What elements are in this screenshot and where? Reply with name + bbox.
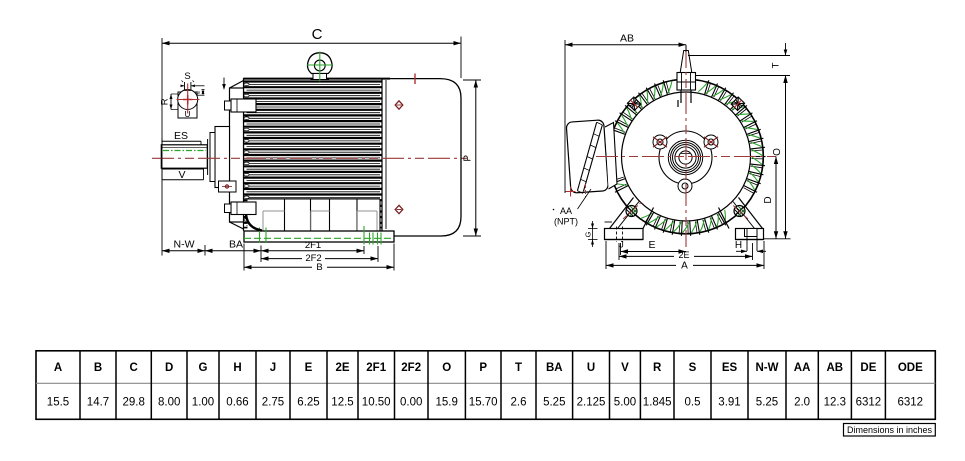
svg-text:C: C — [130, 362, 138, 374]
svg-text:A: A — [54, 362, 62, 374]
svg-text:AA: AA — [560, 206, 572, 216]
svg-text:5.25: 5.25 — [756, 396, 778, 408]
svg-text:J: J — [619, 240, 624, 250]
svg-text:T: T — [771, 62, 782, 68]
svg-text:ES: ES — [722, 362, 738, 374]
svg-text:ES: ES — [174, 130, 188, 142]
svg-text:1.845: 1.845 — [643, 396, 672, 408]
svg-text:N-W: N-W — [174, 239, 195, 251]
svg-text:G: G — [199, 362, 208, 374]
svg-text:BA: BA — [229, 239, 243, 251]
svg-text:12.5: 12.5 — [331, 396, 353, 408]
svg-text:J: J — [270, 362, 276, 374]
svg-text:2.75: 2.75 — [262, 396, 284, 408]
svg-text:R: R — [653, 362, 662, 374]
svg-text:10.50: 10.50 — [362, 396, 391, 408]
svg-text:E: E — [305, 362, 313, 374]
svg-text:AA: AA — [794, 362, 811, 374]
svg-text:5.25: 5.25 — [543, 396, 565, 408]
svg-text:A: A — [681, 261, 688, 272]
svg-text:6312: 6312 — [856, 396, 882, 408]
svg-text:ODE: ODE — [898, 362, 923, 374]
svg-text:2.125: 2.125 — [577, 396, 606, 408]
svg-text:2F1: 2F1 — [305, 240, 321, 251]
svg-text:H: H — [735, 240, 742, 251]
svg-text:2F1: 2F1 — [366, 362, 386, 374]
svg-text:S: S — [184, 71, 190, 82]
svg-text:2E: 2E — [678, 250, 689, 260]
svg-text:AB: AB — [620, 33, 634, 45]
svg-text:12.3: 12.3 — [824, 396, 846, 408]
svg-text:C: C — [312, 26, 323, 43]
svg-text:6312: 6312 — [898, 396, 924, 408]
svg-text:15.5: 15.5 — [47, 396, 69, 408]
svg-text:2F2: 2F2 — [401, 362, 421, 374]
svg-text:D: D — [763, 196, 774, 203]
svg-text:P: P — [479, 362, 487, 374]
svg-text:0.00: 0.00 — [400, 396, 422, 408]
svg-text:Dimensions in inches: Dimensions in inches — [847, 425, 933, 435]
svg-text:15.9: 15.9 — [436, 396, 458, 408]
svg-text:AB: AB — [826, 362, 843, 374]
svg-text:G: G — [584, 231, 593, 237]
svg-text:(NPT): (NPT) — [554, 217, 578, 227]
svg-text:R: R — [160, 98, 171, 105]
svg-text:15.70: 15.70 — [469, 396, 498, 408]
svg-text:3.91: 3.91 — [718, 396, 740, 408]
svg-text:V: V — [621, 362, 629, 374]
svg-text:H: H — [233, 362, 241, 374]
svg-text:N-W: N-W — [756, 362, 779, 374]
svg-text:S: S — [689, 362, 697, 374]
svg-text:29.8: 29.8 — [123, 396, 145, 408]
svg-text:e: e — [196, 91, 202, 94]
svg-text:14.7: 14.7 — [87, 396, 109, 408]
svg-text:5.00: 5.00 — [614, 396, 636, 408]
svg-text:1.00: 1.00 — [192, 396, 214, 408]
svg-text:BA: BA — [546, 362, 563, 374]
svg-text:DE: DE — [860, 362, 876, 374]
svg-text:O: O — [442, 362, 451, 374]
svg-text:P: P — [463, 155, 474, 162]
svg-text:D: D — [165, 362, 173, 374]
svg-text:8.00: 8.00 — [158, 396, 180, 408]
svg-text:U: U — [587, 362, 595, 374]
svg-text:2.6: 2.6 — [511, 396, 527, 408]
svg-text:T: T — [515, 362, 522, 374]
svg-text:E: E — [648, 239, 655, 251]
svg-text:2E: 2E — [335, 362, 349, 374]
svg-text:O: O — [772, 148, 783, 156]
svg-text:B: B — [316, 262, 322, 273]
svg-text:0.66: 0.66 — [226, 396, 248, 408]
svg-text:6.25: 6.25 — [297, 396, 319, 408]
svg-text:0.5: 0.5 — [685, 396, 701, 408]
svg-text:B: B — [94, 362, 102, 374]
svg-text:2.0: 2.0 — [794, 396, 810, 408]
svg-text:V: V — [178, 169, 185, 181]
